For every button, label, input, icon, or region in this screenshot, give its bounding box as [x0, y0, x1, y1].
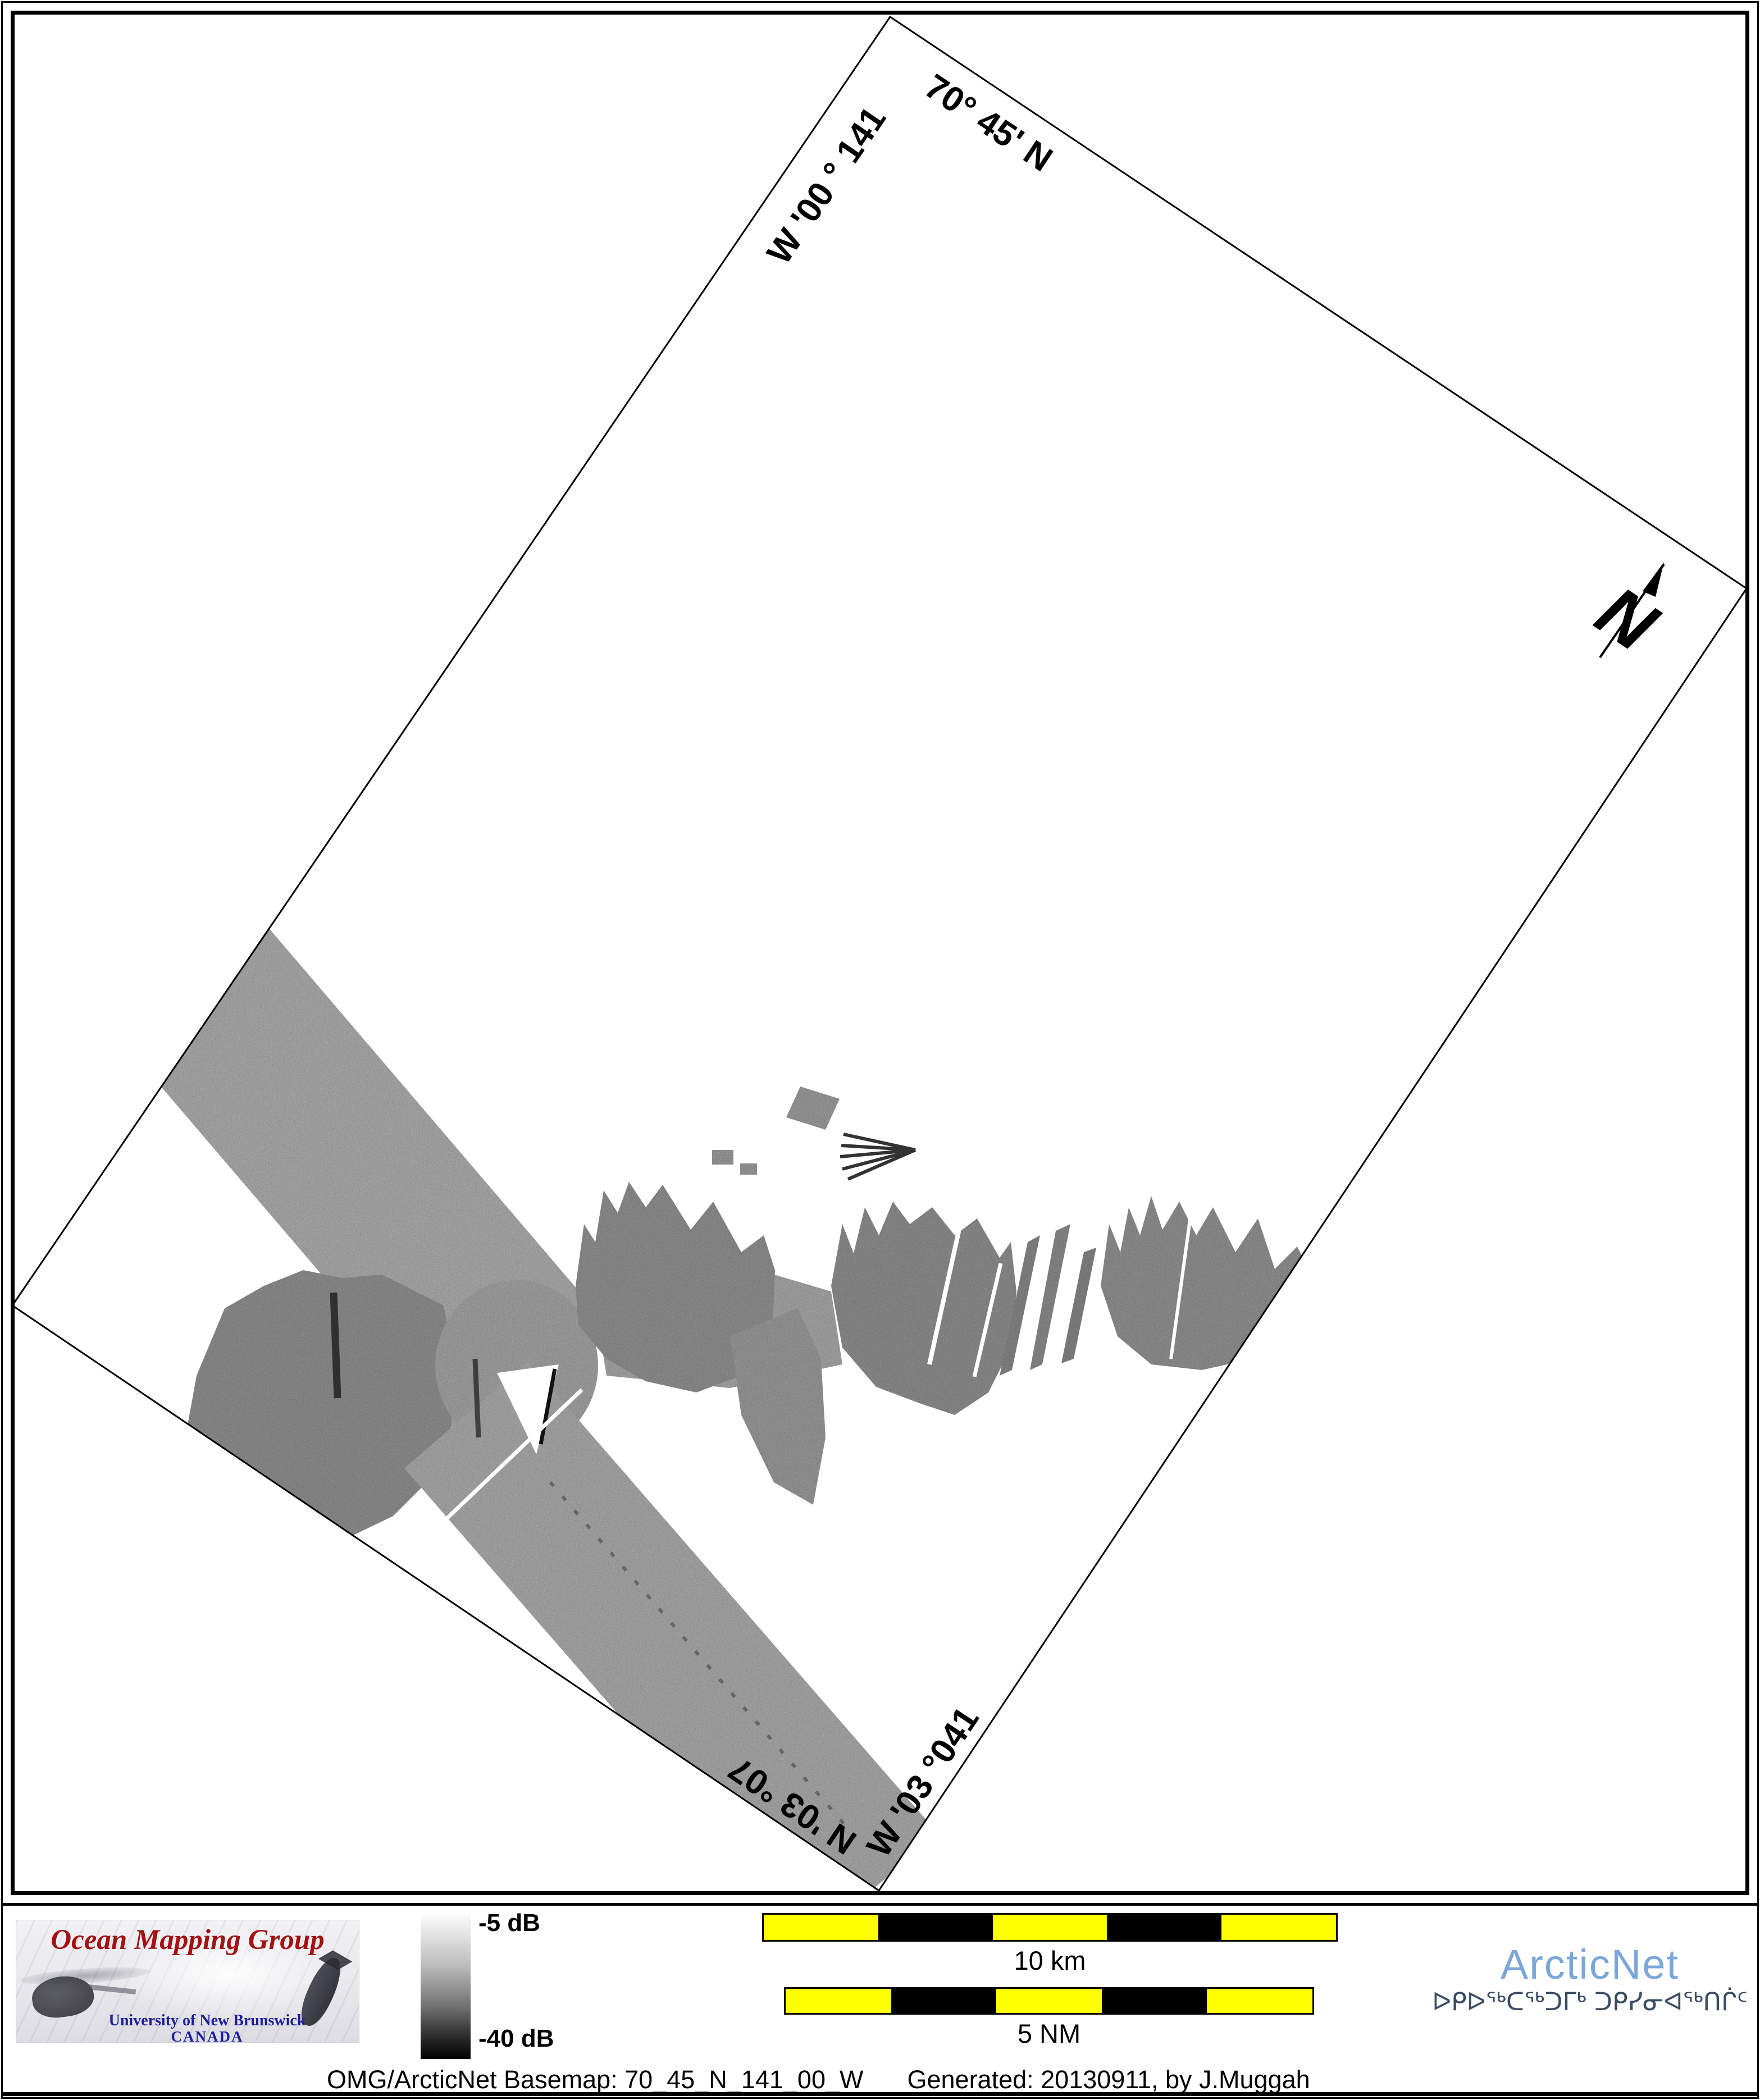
graticule-label-top-left: W '00 ° 141: [760, 100, 894, 271]
sonar-swath-lower: [404, 1362, 938, 1940]
sonar-junction-blob: [185, 1270, 455, 1551]
graticule-label-top-right: 70° 45' N: [918, 67, 1059, 179]
scalebar-segment: [993, 1915, 1107, 1940]
sonar-mosaic: [41, 827, 1314, 1940]
sonar-patch-lobe: [730, 1308, 826, 1505]
basemap-caption: OMG/ArcticNet Basemap: 70_45_N_141_00_WG…: [327, 2065, 1310, 2094]
north-arrow: N: [1583, 562, 1672, 667]
scalebar-nm-label: 5 NM: [784, 2018, 1314, 2049]
scalebar-segment: [786, 1989, 891, 2013]
scalebar-segment: [1221, 1915, 1336, 1940]
sonar-patch-right: [1101, 1196, 1314, 1370]
caption-generated: Generated: 20130911, by J.Muggah: [907, 2065, 1310, 2094]
scalebar-segment: [996, 1989, 1102, 2013]
sonar-bit-1: [712, 1150, 733, 1165]
omg-university-line: University of New Brunswick: [56, 2012, 359, 2030]
colorbar-max-label: -5 dB: [478, 1909, 540, 1937]
footer-bar: Ocean Mapping Group University of New Br…: [2, 1906, 1758, 2092]
scalebar-segment: [878, 1915, 993, 1940]
omg-title: Ocean Mapping Group: [16, 1924, 359, 1956]
scalebar-segment: [1102, 1989, 1207, 2013]
footer-bottom-rule: [2, 2092, 1758, 2096]
sonar-bit-2: [740, 1163, 757, 1175]
sonar-bit-3: [786, 1086, 840, 1130]
arcticnet-logo: ArcticNet: [1421, 1941, 1758, 1988]
footer-top-rule: [2, 1903, 1758, 1906]
sonar-sliver-3: [1061, 1248, 1096, 1363]
scalebar-segment: [1207, 1989, 1312, 2013]
scalebar-km-label: 10 km: [762, 1945, 1338, 1976]
arcticnet-inuktitut: ᐅᑭᐅᖅᑕᖅᑐᒥᒃ ᑐᑭᓯᓂᐊᖅᑎᒌᑦ: [1393, 1988, 1760, 2016]
scalebar-segment: [764, 1915, 878, 1940]
scalebar-segment: [1107, 1915, 1221, 1940]
scalebar-km: [762, 1913, 1338, 1942]
scalebar-nm: [784, 1987, 1314, 2015]
backscatter-colorbar: [421, 1914, 471, 2059]
map-canvas: N 70° 45' N W '00 ° 141 N '03 °07 W '03 …: [0, 0, 1760, 2100]
colorbar-min-label: -40 dB: [478, 2025, 554, 2053]
scalebar-segment: [891, 1989, 997, 2013]
caption-basemap-id: OMG/ArcticNet Basemap: 70_45_N_141_00_W: [327, 2065, 863, 2094]
omg-canada-line: CANADA: [56, 2028, 359, 2043]
omg-logo: Ocean Mapping Group University of New Br…: [16, 1920, 359, 2043]
